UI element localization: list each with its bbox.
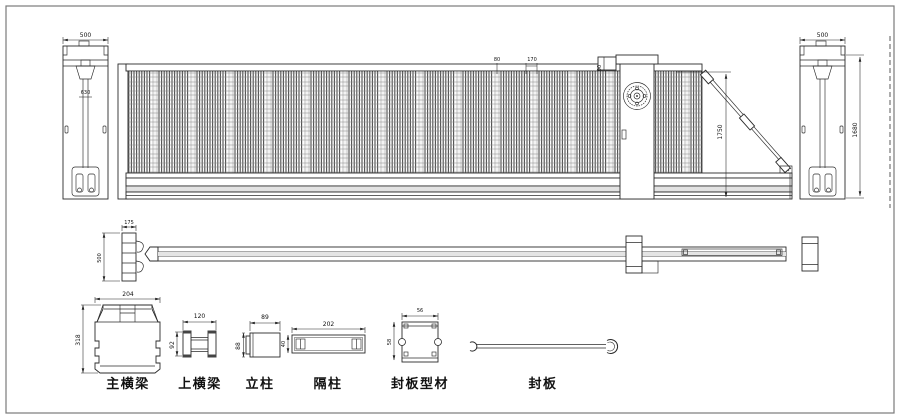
- label-seal-plate: 封板: [528, 376, 557, 392]
- dim-left-column-inner: 630: [81, 90, 91, 96]
- dim-plan-width: 175: [124, 220, 134, 226]
- component-seal-plate: 封板: [470, 340, 618, 393]
- plan-gate-beam: [145, 247, 786, 261]
- dim-spacer-height: 40: [281, 341, 287, 347]
- dim-post-width: 89: [261, 314, 269, 321]
- label-spacer: 隔柱: [313, 376, 342, 392]
- component-post: 89 88 立柱: [235, 314, 280, 392]
- gate-leaf: 80 170: [118, 57, 792, 199]
- dim-seal-profile-width: 56: [417, 308, 423, 314]
- label-top-beam: 上横梁: [178, 376, 222, 392]
- right-guide-column: 500 1680: [800, 32, 864, 199]
- label-main-beam: 主横梁: [106, 376, 150, 392]
- gate-mesh-panel-right: [654, 71, 702, 173]
- front-elevation: 500 630 80 170: [63, 32, 890, 208]
- drawing-page: 500 630 80 170: [0, 0, 900, 419]
- dim-motor-top: 90: [597, 65, 603, 71]
- dim-post-height: 88: [235, 342, 242, 350]
- component-sections: 204 318 主横梁 120 92 上横梁: [75, 291, 618, 392]
- dim-left-column-width: 500: [80, 32, 92, 39]
- dim-top-beam-height: 92: [169, 341, 176, 349]
- left-guide-column: 500 630: [63, 32, 108, 199]
- dim-right-column-height: 1680: [852, 122, 859, 137]
- dim-top-beam-width: 120: [194, 313, 206, 320]
- label-seal-profile: 封板型材: [391, 376, 449, 392]
- dim-right-column-width: 500: [817, 32, 829, 39]
- bottom-track-beam: [126, 173, 792, 199]
- dim-mesh-a: 80: [494, 57, 500, 63]
- plan-right-column: [802, 237, 818, 271]
- plan-view: 175 500: [97, 220, 818, 281]
- dim-seal-profile-height: 58: [387, 339, 393, 345]
- component-top-beam: 120 92 上横梁: [169, 313, 222, 392]
- dim-mesh-b: 170: [527, 57, 537, 63]
- technical-drawing: 500 630 80 170: [0, 0, 900, 419]
- dim-brace-height: 1750: [717, 124, 724, 139]
- component-spacer: 202 40 隔柱: [281, 321, 365, 392]
- label-post: 立柱: [245, 376, 274, 392]
- component-main-beam: 204 318 主横梁: [75, 291, 160, 392]
- component-seal-profile: 56 58 封板型材: [387, 308, 449, 392]
- plan-column-section: 175 500: [97, 220, 143, 281]
- gate-mesh-panel: [128, 71, 620, 173]
- dim-main-beam-height: 318: [75, 334, 82, 346]
- dim-spacer-width: 202: [323, 321, 335, 328]
- dim-main-beam-width: 204: [122, 291, 134, 298]
- dim-plan-depth: 500: [97, 253, 103, 263]
